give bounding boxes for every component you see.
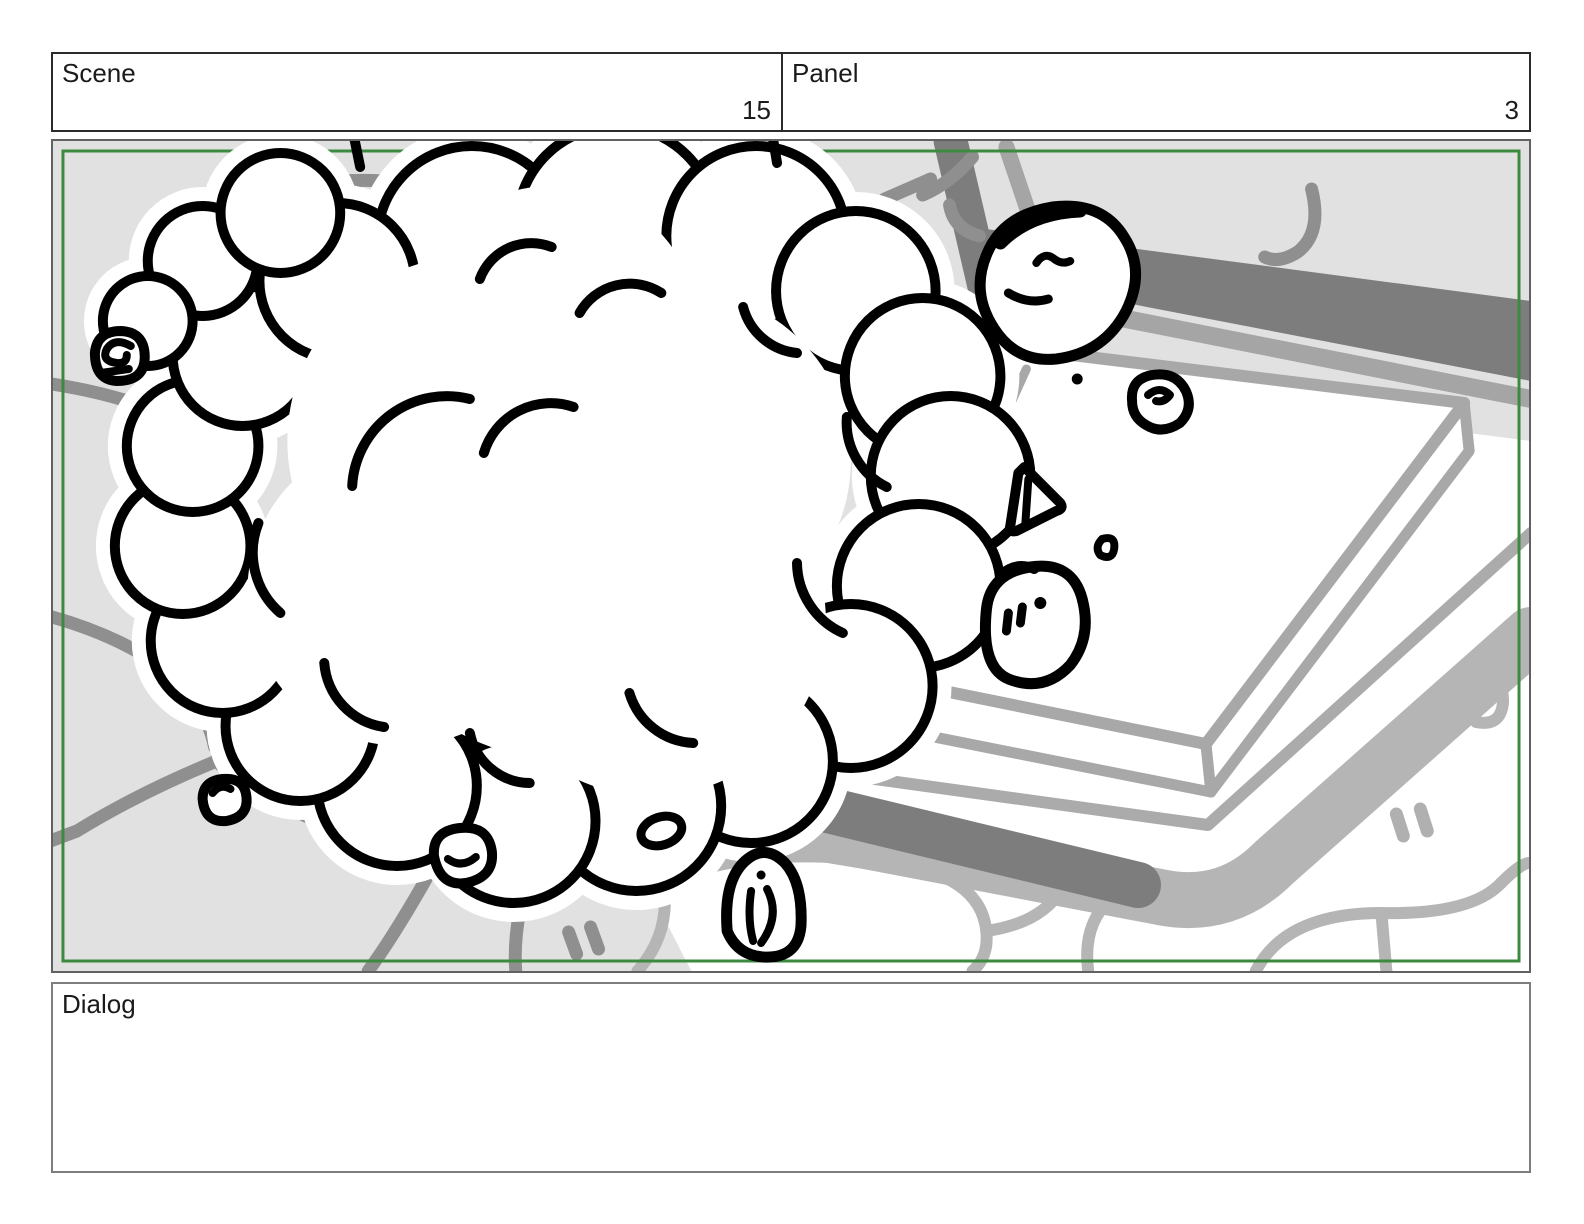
rock-on-slab [985, 566, 1085, 683]
panel-number: 3 [1505, 95, 1519, 126]
debris-dot [1072, 374, 1083, 385]
storyboard-page: Scene 15 Panel 3 [0, 0, 1584, 1224]
dialog-label: Dialog [62, 989, 136, 1020]
pebble-mid [434, 828, 492, 884]
scene-cell: Scene 15 [53, 54, 781, 130]
rock-big-top [980, 206, 1136, 359]
storyboard-drawing [53, 141, 1529, 971]
debris-comma [1098, 538, 1115, 557]
dialog-box[interactable]: Dialog [51, 982, 1531, 1173]
scene-number: 15 [742, 95, 771, 126]
storyboard-canvas[interactable] [51, 139, 1531, 973]
panel-cell: Panel 3 [781, 54, 1529, 130]
scene-label: Scene [62, 58, 136, 89]
panel-label: Panel [792, 58, 859, 89]
header-row: Scene 15 Panel 3 [51, 52, 1531, 132]
